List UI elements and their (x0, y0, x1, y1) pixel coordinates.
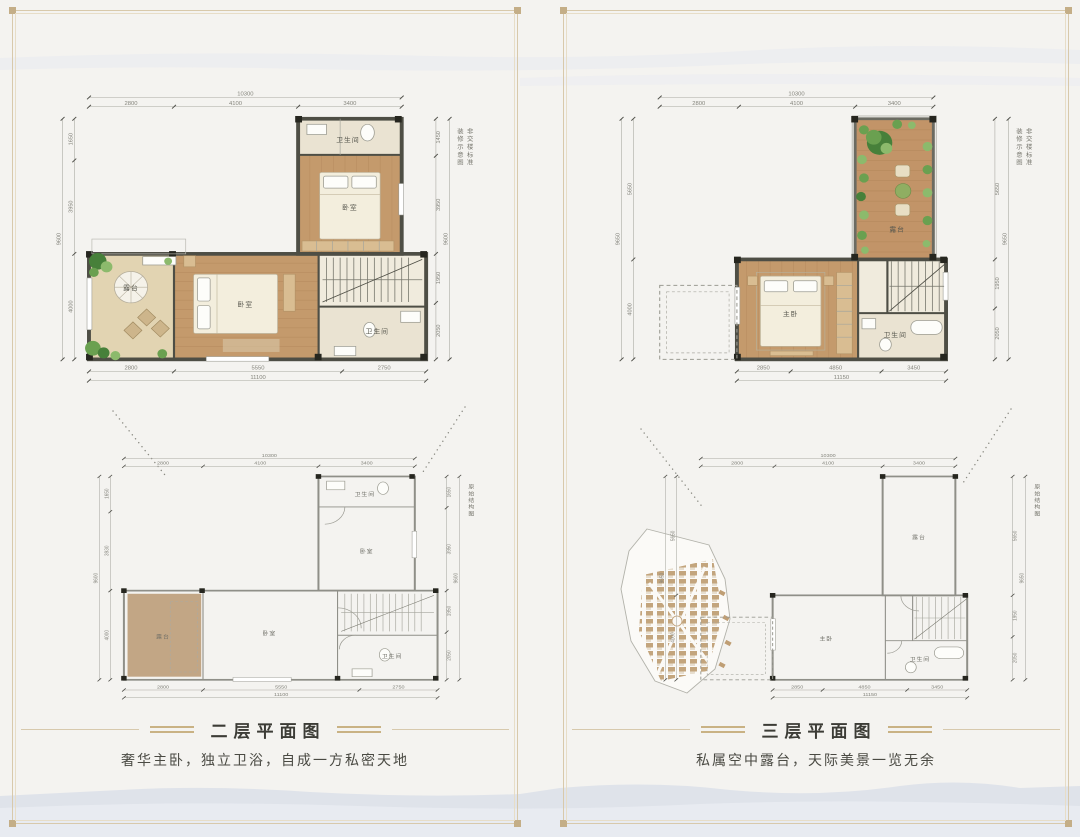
panel-floor-3: 10300 2800 4100 3400 9650 5650 4000 5650… (563, 10, 1069, 824)
master-bed (748, 272, 853, 355)
dim: 5650 (995, 183, 1001, 195)
dim: 3450 (907, 366, 920, 372)
structural-walls (121, 474, 438, 681)
stairs (341, 594, 434, 632)
dim-total: 9650 (659, 573, 665, 584)
dim-total: 10300 (821, 453, 836, 459)
room-label-bed-top: 卧室 (360, 548, 374, 555)
dim: 4100 (790, 101, 803, 107)
dim: 2850 (791, 685, 803, 691)
dim: 2050 (446, 650, 452, 661)
dim: 5650 (1012, 531, 1018, 542)
dim: 3950 (68, 201, 74, 213)
dim-total: 9600 (444, 233, 450, 245)
dim: 2800 (124, 101, 137, 107)
caption-line (943, 729, 1061, 730)
room-label-bath-low: 卫生间 (366, 327, 389, 336)
dim-chain-right: 5650 1950 2050 9650 (1011, 475, 1027, 681)
floor-plan-2f-structural: 10300 2800 4100 3400 9600 1650 3930 4000… (83, 453, 483, 715)
dim: 1650 (446, 487, 452, 498)
dim: 5650 (627, 183, 633, 195)
fixtures (327, 481, 391, 677)
room-label-bed-mid: 卧室 (238, 300, 254, 309)
annotation-structure-note: 原始结构图 (467, 484, 474, 517)
frame-corner (1065, 7, 1072, 14)
frame-corner (9, 7, 16, 14)
dim: 2800 (157, 461, 169, 467)
structural-walls (701, 474, 968, 680)
frame-corner (1065, 820, 1072, 827)
dim: 4000 (68, 300, 74, 312)
roof-terrace (852, 116, 936, 262)
room-label-master: 主卧 (783, 309, 799, 318)
annotation-decor-note: 非交楼标准 (1025, 127, 1032, 167)
dim-chain-top: 10300 2800 4100 3400 (699, 453, 957, 468)
dim: 4100 (229, 101, 242, 107)
dim-chain-right: 5650 1950 2050 9650 (993, 117, 1011, 361)
dim: 3950 (446, 544, 452, 555)
dim-chain-bottom: 2800 5550 2750 11100 (122, 685, 439, 700)
dim-chain-right: 1450 3950 1950 2050 9600 (434, 117, 452, 361)
annotation-decor-note: 装修示意图 (456, 127, 463, 167)
dim-chain-top: 10300 2800 4100 3400 (87, 92, 404, 109)
frame-corner (9, 820, 16, 827)
dim-total: 11150 (834, 375, 849, 381)
dim: 2800 (124, 366, 137, 372)
dim: 4100 (254, 461, 266, 467)
caption-line (572, 729, 690, 730)
caption-double-bar (337, 726, 381, 733)
annotation-structure-note: 原始结构图 (1033, 484, 1040, 517)
dim: 2750 (392, 685, 404, 691)
caption-line (21, 729, 139, 730)
dim: 1950 (436, 272, 442, 284)
dim-chain-top: 10300 2800 4100 3400 (122, 453, 417, 468)
stairs (914, 597, 967, 639)
floor-plan-3f-structural: 10300 2800 4100 3400 9650 5650 4000 5650… (649, 453, 1049, 715)
dim: 4100 (822, 461, 834, 467)
dim: 4850 (858, 685, 870, 691)
dim: 3950 (436, 199, 442, 211)
frame-corner (514, 820, 521, 827)
roof-below-outline (701, 617, 773, 680)
dim: 1950 (995, 277, 1001, 289)
dim: 1950 (446, 606, 452, 617)
dim: 1450 (436, 131, 442, 143)
room-label-bed-mid: 卧室 (263, 630, 277, 637)
caption-double-bar (150, 726, 194, 733)
dim-total: 9600 (453, 573, 459, 584)
dim: 4000 (670, 632, 676, 643)
dim-total: 9650 (1003, 233, 1009, 245)
floor-plan-3f-furnished: 10300 2800 4100 3400 9650 5650 4000 5650… (604, 91, 1034, 401)
dim: 1650 (104, 488, 110, 499)
plan-caption: 二层平面图 (205, 717, 326, 742)
room-label-bath-top: 卫生间 (355, 490, 375, 497)
dim-chain-left: 9650 5650 4000 (659, 475, 678, 681)
dim: 2050 (1012, 653, 1018, 664)
room-label-terrace: 露台 (912, 533, 926, 540)
room-label-terrace: 露台 (123, 283, 139, 292)
plan-tagline: 私属空中露台，天际美景一览无余 (564, 750, 1068, 770)
room-label-bed-top: 卧室 (342, 203, 358, 212)
dim-chain-bottom: 2850 4850 3450 11150 (735, 366, 948, 383)
dim: 3450 (931, 685, 943, 691)
dim: 5550 (275, 685, 287, 691)
annotation-decor-note: 装修示意图 (1015, 127, 1022, 167)
dim-total: 10300 (237, 92, 253, 98)
caption-line (392, 729, 510, 730)
panel-floor-2: 10300 2800 4100 3400 9600 1650 3950 4000… (12, 10, 518, 824)
dim: 2850 (757, 366, 770, 372)
dim-chain-left: 9650 5650 4000 (616, 117, 636, 361)
dim: 2050 (995, 327, 1001, 339)
dim: 2800 (157, 685, 169, 691)
plan-tagline: 奢华主卧，独立卫浴，自成一方私密天地 (13, 750, 517, 770)
annotation-decor-note: 非交楼标准 (466, 127, 473, 167)
dim-chain-right: 1650 3950 1950 2050 9600 (445, 475, 461, 681)
dim-chain-left: 9600 1650 3930 4000 (93, 475, 112, 681)
dim-total: 9600 (93, 573, 99, 584)
frame-corner (560, 820, 567, 827)
dim-chain-top: 10300 2800 4100 3400 (658, 92, 936, 109)
caption-double-bar (888, 726, 932, 733)
dim-total: 11100 (250, 375, 265, 381)
room-label-bath-low: 卫生间 (382, 652, 402, 659)
plan-caption-row: 三层平面图 (572, 717, 1060, 742)
dim: 5550 (252, 366, 265, 372)
dim-total: 11150 (863, 693, 878, 699)
brochure-page: 10300 2800 4100 3400 9600 1650 3950 4000… (0, 0, 1080, 837)
dim-chain-left: 9600 1650 3950 4000 (57, 117, 77, 361)
dim: 1650 (68, 133, 74, 145)
dim: 2800 (692, 101, 705, 107)
dim: 3930 (104, 545, 110, 556)
frame-corner (560, 7, 567, 14)
dim-total: 10300 (262, 453, 277, 459)
caption-double-bar (701, 726, 745, 733)
dim: 3400 (913, 461, 925, 467)
dim-chain-bottom: 2800 5550 2750 11100 (87, 366, 428, 383)
dim: 3400 (361, 461, 373, 467)
dim: 2800 (731, 461, 743, 467)
dim-total: 11100 (274, 693, 289, 699)
dim-total: 10300 (788, 92, 804, 98)
roof-below-outline (660, 285, 737, 359)
plan-caption: 三层平面图 (756, 717, 877, 742)
room-label-bath: 卫生间 (884, 330, 907, 339)
dim-chain-bottom: 2850 4850 3450 11150 (771, 685, 969, 700)
room-label-terrace: 露台 (156, 633, 170, 640)
dim-total: 9650 (1019, 573, 1025, 584)
room-label-terrace: 露台 (889, 225, 905, 234)
dim: 5650 (670, 531, 676, 542)
dim: 1950 (1012, 610, 1018, 621)
dim-total: 9600 (57, 233, 63, 245)
dim: 3400 (888, 101, 901, 107)
dim: 4000 (627, 303, 633, 315)
plan-caption-row: 二层平面图 (21, 717, 509, 742)
room-label-master: 主卧 (819, 635, 833, 642)
floor-plan-2f-furnished: 10300 2800 4100 3400 9600 1650 3950 4000… (45, 91, 475, 401)
dim: 2750 (378, 366, 391, 372)
dim: 4000 (104, 630, 110, 641)
dim: 4850 (829, 366, 842, 372)
room-label-bath: 卫生间 (910, 656, 930, 663)
dim: 3400 (343, 101, 356, 107)
dim: 2050 (436, 325, 442, 337)
dim-total: 9650 (616, 233, 622, 245)
room-label-bath-top: 卫生间 (336, 135, 359, 144)
frame-corner (514, 7, 521, 14)
